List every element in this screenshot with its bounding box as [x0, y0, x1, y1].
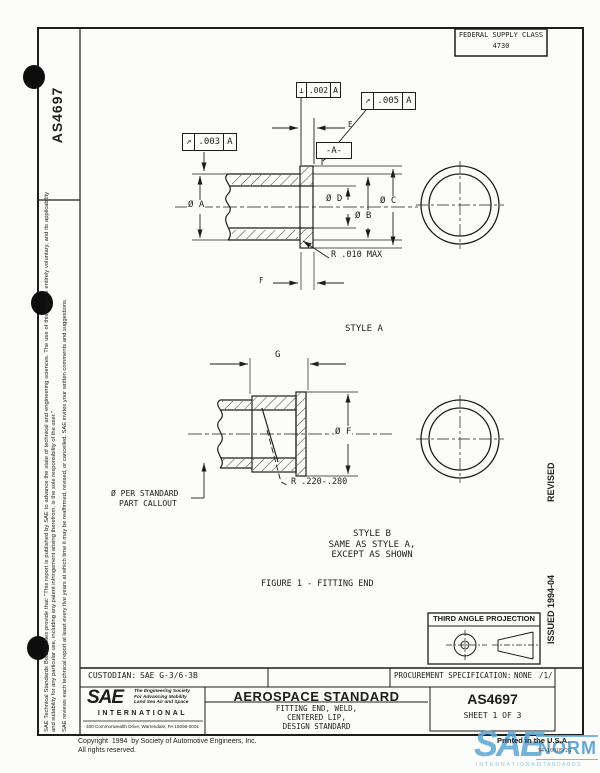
- disclaimer-paragraph-2: SAE reviews each technical report at lea…: [62, 192, 68, 732]
- datum-flag-a: -A-: [316, 142, 352, 159]
- revised-label: REVISED: [546, 462, 556, 502]
- procurement-value: NONE: [514, 672, 532, 680]
- rights-line: All rights reserved.: [78, 747, 136, 754]
- style-a-end-view: [416, 161, 504, 249]
- fcf-runout-upper: ↗ .005 A: [361, 92, 416, 110]
- style-b-view: [188, 392, 392, 476]
- watermark-rule: [536, 759, 598, 760]
- sae-logo-icon: SAE: [87, 687, 123, 709]
- watermark-international-text: INTERNATIONAL: [476, 762, 542, 768]
- issued-label: ISSUED 1994-04: [546, 575, 556, 644]
- note-per-standard-2: PART CALLOUT: [119, 500, 177, 508]
- dim-f: F: [259, 277, 264, 285]
- runout-symbol-icon: ↗: [183, 134, 195, 150]
- dim-dia-b: Ø B: [354, 212, 372, 221]
- doc-number-title-block: AS4697: [430, 692, 555, 707]
- dim-e: E: [348, 121, 353, 129]
- disclaimer-paragraph-1: SAE Technical Standards Board Rules prov…: [44, 192, 58, 732]
- note-per-standard-1: Ø PER STANDARD: [111, 490, 178, 498]
- sae-tagline-3: Land Sea Air and Space: [134, 700, 190, 706]
- dim-dia-c: Ø C: [379, 197, 397, 206]
- procurement-label: PROCUREMENT SPECIFICATION:: [394, 672, 511, 680]
- caption-style-a: STYLE A: [345, 325, 383, 334]
- doc-number-tab: AS4697: [49, 35, 65, 195]
- sae-international-label: INTERNATIONAL: [84, 710, 201, 717]
- doc-title-line-2: CENTERED LIP,: [205, 714, 428, 722]
- fcf-perpendicularity: ⊥ .002 A: [296, 82, 341, 98]
- standard-type-heading: AEROSPACE STANDARD: [205, 690, 428, 704]
- drawing-linework: [0, 0, 600, 773]
- document-sheet: FEDERAL SUPPLY CLASS 4730 AS4697 SAE Tec…: [0, 0, 600, 773]
- projection-title: THIRD ANGLE PROJECTION: [428, 615, 540, 623]
- sheet-borders: [38, 28, 583, 735]
- style-b-end-view: [416, 395, 504, 483]
- dim-dia-f: Ø F: [334, 428, 352, 437]
- federal-supply-class-label: FEDERAL SUPPLY CLASS: [455, 32, 547, 39]
- sae-logo-block: SAE The Engineering Society For Advancin…: [82, 687, 203, 735]
- runout-symbol-icon: ↗: [362, 93, 374, 109]
- dim-dia-a: Ø A: [187, 201, 205, 210]
- procurement-note: /1/: [539, 672, 553, 680]
- note-radius-max: R .010 MAX: [331, 251, 382, 260]
- copyright-line: Copyright 1994 by Society of Automotive …: [78, 738, 257, 745]
- printed-in-usa-line: Printed in the U.S.A.: [497, 737, 569, 745]
- style-a-view: [175, 166, 418, 248]
- sheet-number: SHEET 1 OF 3: [430, 712, 555, 720]
- dim-dia-d: Ø D: [325, 195, 343, 204]
- dim-g: G: [275, 351, 280, 360]
- sae-tagline-1: The Engineering Society: [134, 689, 190, 695]
- sae-address: 400 Commonwealth Drive, Warrendale, PA 1…: [82, 724, 203, 729]
- fcf-runout-lower: ↗ .003 A: [182, 133, 237, 151]
- watermark-standards-text: STANDARDS: [538, 762, 582, 768]
- custodian-value: SAE G-3/6-3B: [140, 672, 198, 680]
- doc-code: 94-1001B/2G: [538, 749, 571, 754]
- note-radius-range: R .220-.280: [291, 478, 347, 487]
- doc-title-line-1: FITTING END, WELD,: [205, 705, 428, 713]
- custodian-label: CUSTODIAN:: [88, 672, 136, 680]
- perpendicularity-symbol-icon: ⊥: [297, 83, 307, 97]
- caption-style-b-3: EXCEPT AS SHOWN: [320, 551, 424, 560]
- caption-style-b-1: STYLE B: [320, 530, 424, 539]
- doc-title-line-3: DESIGN STANDARD: [205, 723, 428, 731]
- federal-supply-class-value: 4730: [455, 43, 547, 50]
- figure-caption: FIGURE 1 - FITTING END: [261, 580, 374, 589]
- style-a-dimensions: [192, 98, 402, 290]
